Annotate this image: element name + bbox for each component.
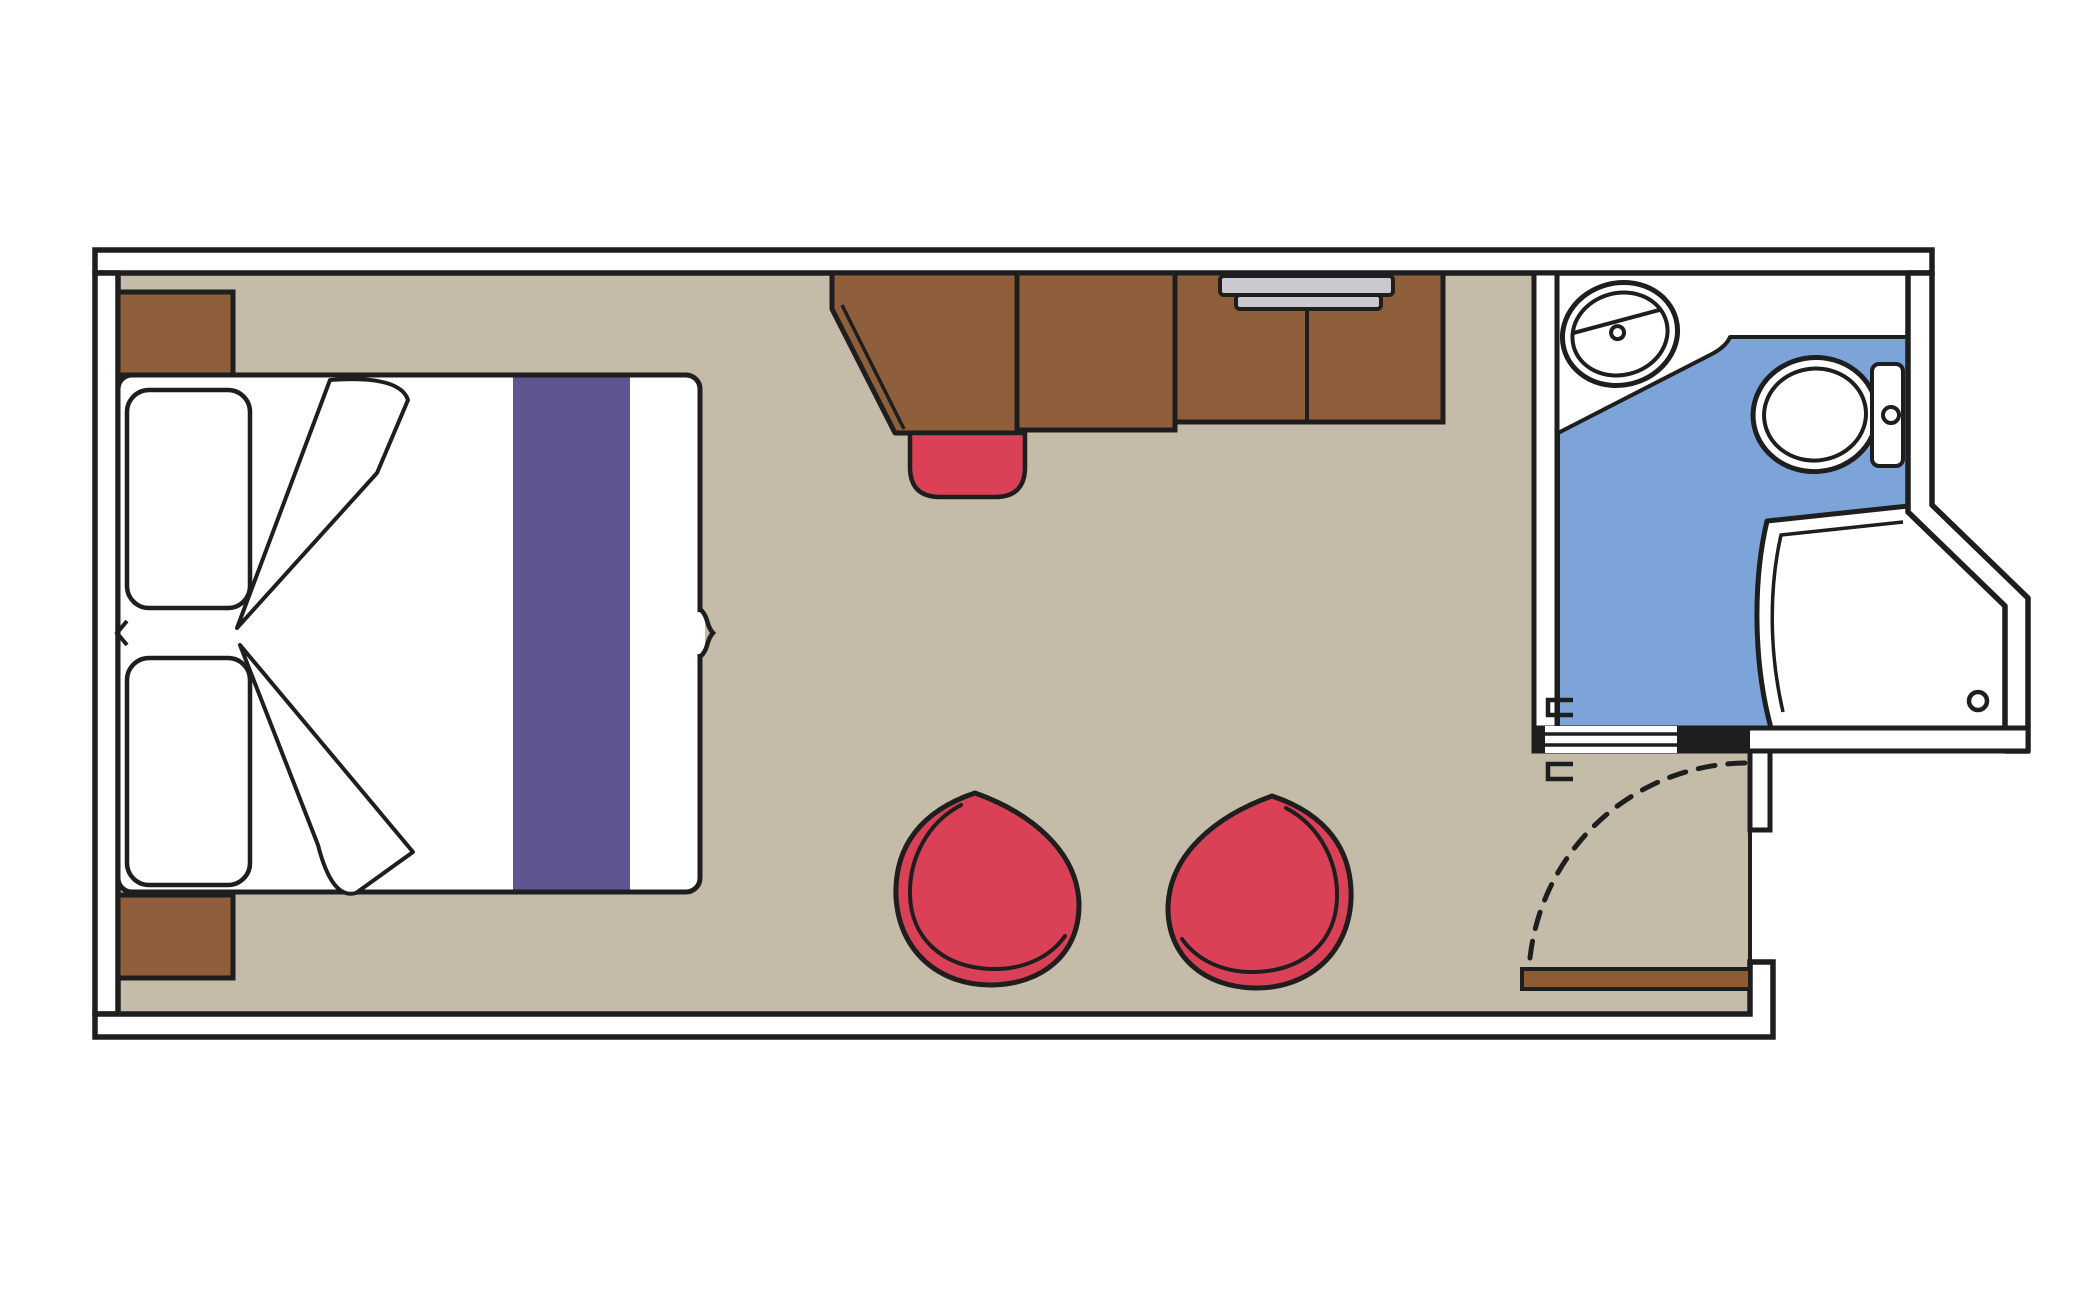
nightstand-top [118, 292, 233, 375]
bed-runner [513, 375, 630, 892]
pillow-bottom [127, 658, 250, 885]
tv-shelf-outer [1220, 276, 1393, 295]
desk-stool [910, 433, 1025, 497]
wall-bathroom-divider [1534, 273, 1557, 728]
sink-drain-icon [1610, 325, 1626, 341]
wall-top [95, 250, 1932, 273]
wall-door-jamb [1750, 751, 1770, 830]
floor-plan-svg [0, 0, 2099, 1299]
wall-left [95, 273, 118, 1014]
shower-drain-icon [1969, 692, 1987, 710]
sliding-door-gap [1545, 726, 1677, 753]
pillow-top [127, 390, 250, 608]
cabinet [1017, 273, 1175, 430]
bed-group [117, 292, 713, 978]
tv-shelf-inner [1236, 295, 1381, 309]
door-leaf [1522, 969, 1750, 989]
mattress-split-mask [695, 612, 705, 654]
nightstand-bottom [118, 895, 233, 978]
toilet-flush-button-icon [1883, 407, 1899, 423]
cabin-floor-plan-page [0, 0, 2099, 1299]
